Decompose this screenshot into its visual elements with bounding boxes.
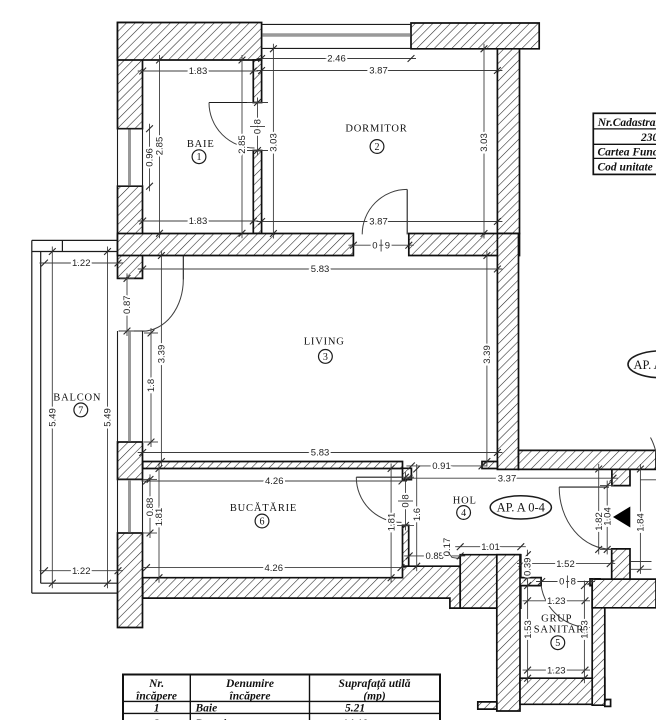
svg-text:0.91: 0.91 (432, 461, 451, 472)
svg-text:BALCON: BALCON (53, 392, 101, 403)
svg-text:8: 8 (253, 119, 264, 124)
svg-text:1.01: 1.01 (481, 542, 500, 553)
svg-text:3.87: 3.87 (369, 66, 388, 77)
svg-text:0: 0 (253, 129, 264, 134)
svg-text:1.81: 1.81 (154, 508, 165, 527)
svg-text:(mp): (mp) (363, 691, 386, 703)
svg-text:3.87: 3.87 (369, 217, 388, 228)
svg-text:Cod unitate ind: Cod unitate ind (598, 162, 656, 174)
svg-text:4.26: 4.26 (265, 563, 284, 574)
svg-text:încăpere: încăpere (136, 691, 177, 703)
svg-text:1.6: 1.6 (412, 508, 423, 521)
svg-text:1: 1 (154, 702, 160, 714)
svg-text:2: 2 (375, 142, 380, 153)
svg-text:încăpere: încăpere (230, 691, 271, 703)
svg-text:1.23: 1.23 (547, 665, 566, 676)
svg-text:2.85: 2.85 (237, 135, 248, 154)
svg-text:1.22: 1.22 (72, 258, 91, 269)
svg-text:BAIE: BAIE (187, 139, 215, 150)
svg-text:2.85: 2.85 (155, 137, 166, 156)
svg-text:3.37: 3.37 (498, 473, 517, 484)
svg-text:0: 0 (372, 240, 377, 251)
svg-text:DORMITOR: DORMITOR (345, 124, 407, 135)
svg-text:5.83: 5.83 (311, 448, 330, 459)
svg-text:8: 8 (571, 577, 576, 588)
svg-text:7: 7 (78, 405, 83, 416)
svg-text:5.49: 5.49 (103, 408, 114, 427)
svg-text:AP. A 0-4: AP. A 0-4 (497, 501, 546, 515)
svg-text:AP. A 0: AP. A 0 (634, 358, 656, 372)
svg-text:1.8: 1.8 (146, 379, 157, 392)
svg-text:4.26: 4.26 (265, 476, 284, 487)
svg-text:4: 4 (461, 508, 466, 519)
svg-text:Baie: Baie (195, 702, 218, 714)
svg-text:Cartea Funciara: Cartea Funciara (598, 146, 656, 158)
svg-text:1.84: 1.84 (636, 513, 647, 532)
svg-text:1.83: 1.83 (189, 66, 208, 77)
svg-text:SANITAR: SANITAR (534, 624, 584, 635)
svg-text:LIVING: LIVING (304, 336, 345, 347)
svg-text:230456: 230456 (640, 132, 656, 144)
svg-text:1.52: 1.52 (556, 559, 575, 570)
svg-text:2.46: 2.46 (327, 54, 346, 65)
svg-text:0.17: 0.17 (442, 538, 453, 557)
svg-text:1.23: 1.23 (547, 596, 566, 607)
svg-text:3.03: 3.03 (479, 133, 490, 152)
svg-text:1.81: 1.81 (386, 513, 397, 532)
svg-text:0.39: 0.39 (523, 558, 534, 577)
svg-text:6: 6 (260, 516, 265, 527)
svg-text:3.03: 3.03 (269, 133, 280, 152)
svg-text:Nr.Cadastral: Nr.Cadastral (597, 117, 656, 129)
svg-text:5: 5 (555, 638, 560, 649)
svg-text:5.49: 5.49 (48, 408, 59, 427)
svg-text:1.04: 1.04 (602, 507, 613, 526)
svg-text:0.87: 0.87 (122, 295, 133, 314)
svg-text:3: 3 (323, 352, 328, 363)
svg-text:1.53: 1.53 (523, 620, 534, 639)
svg-text:5.21: 5.21 (345, 702, 365, 714)
svg-text:Nr.: Nr. (148, 678, 164, 690)
svg-text:BUCĂTĂRIE: BUCĂTĂRIE (230, 502, 297, 514)
svg-text:1: 1 (197, 152, 202, 163)
svg-text:1.83: 1.83 (189, 216, 208, 227)
svg-text:Denumire: Denumire (225, 678, 274, 690)
svg-text:GRUP: GRUP (541, 613, 572, 624)
svg-text:5.83: 5.83 (311, 264, 330, 275)
svg-text:9: 9 (385, 240, 390, 251)
svg-text:HOL: HOL (453, 495, 477, 506)
svg-text:1.22: 1.22 (72, 566, 91, 577)
svg-text:3.39: 3.39 (157, 345, 168, 364)
svg-text:0: 0 (559, 577, 564, 588)
svg-text:Suprafață utilă: Suprafață utilă (339, 678, 411, 691)
svg-text:3.39: 3.39 (482, 345, 493, 364)
